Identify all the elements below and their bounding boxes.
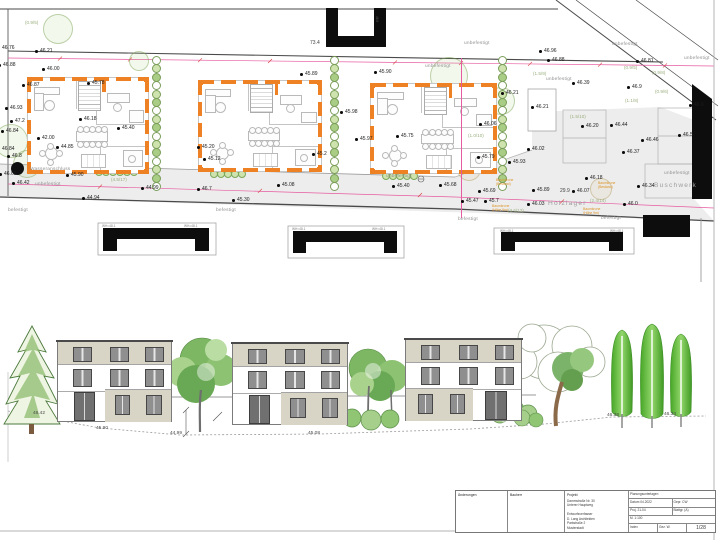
title-block-client: Bauherr (508, 491, 565, 532)
window (145, 347, 164, 362)
elevation-point: 42.00 (42, 136, 55, 141)
wall-corner (370, 169, 375, 174)
window (495, 345, 514, 360)
sofa (34, 93, 44, 111)
project-line: Dammstraße Nr. 30 (567, 499, 626, 503)
elevation-point: 46.0 (628, 202, 638, 207)
elevation-point: 46.88 (552, 58, 565, 63)
desk (107, 93, 129, 103)
window (110, 347, 129, 362)
surface-label: Holzlager (548, 201, 587, 208)
window (285, 349, 304, 364)
tb-cell: Gepr. CW (673, 499, 716, 506)
project-line: Unterer Hauptweg (567, 503, 626, 507)
window (290, 398, 306, 418)
sofa (205, 95, 216, 112)
wall-corner (198, 167, 203, 172)
window (146, 395, 162, 415)
tree-size-label: (1.0/10) (468, 134, 484, 139)
dimension-text: 73.4 (310, 41, 320, 46)
coffee-table (215, 102, 226, 113)
tree-crown (129, 51, 149, 71)
cabinet (301, 112, 316, 124)
sink (128, 155, 136, 163)
window (321, 349, 340, 364)
elevation-dim-ticks (183, 407, 222, 437)
tree-size-label: (0.9/6) (655, 90, 668, 95)
hedge-shrub (330, 182, 339, 191)
elevation-point: 46.18 (84, 117, 97, 122)
office-chair (286, 104, 295, 113)
window (459, 345, 478, 360)
ground-elevation-label: 46.34 (664, 413, 676, 418)
elevation-point: 46.03 (532, 202, 545, 207)
surface-label: befestigt (216, 209, 236, 214)
entrance-door (74, 392, 95, 421)
conifer-tree (4, 326, 60, 434)
chair (391, 145, 398, 152)
chair (47, 143, 54, 150)
tb-cell: Gez. W. (658, 524, 687, 532)
window (421, 345, 440, 360)
elevation-point: 46.20 (586, 124, 599, 129)
surface-label: befestigt (458, 218, 478, 223)
garage-height-label: WH=48.1 (102, 225, 115, 228)
surface-label: befestigt (601, 217, 621, 222)
elevation-point: 46.5 (683, 133, 693, 138)
interior-wall (248, 81, 249, 111)
wall (28, 77, 148, 81)
tree-note-label: Baumkrone(Höhe 9m) (492, 204, 509, 212)
wall (318, 81, 322, 171)
elevation-point: 46.84 (2, 147, 15, 152)
title-block-grid: Planungsunterlagen Datum 04.2022Gepr. CW… (629, 491, 715, 532)
tree-size-label: (1.1/8) (625, 99, 638, 104)
elevation-point: 46.21 (40, 49, 53, 54)
elevation-point: 46.37 (627, 150, 640, 155)
elevation-point: 45.40 (397, 184, 410, 189)
surface-label: unbefestigt (546, 78, 572, 83)
elevation-point: 46.06 (484, 122, 497, 127)
elevation-point: 46.7 (202, 187, 212, 192)
elevation-point: 46.81 (641, 59, 654, 64)
window (418, 394, 434, 414)
elevation-point: 45.90 (379, 70, 392, 75)
garage-height-label: WH=48.1 (610, 230, 623, 233)
elevation-point: 45.68 (444, 183, 457, 188)
surface-label: unbefestigt (664, 172, 690, 177)
elevation-point: 46.68 (4, 172, 17, 177)
wall (145, 78, 149, 173)
window (115, 395, 131, 415)
ground-elevation-label: 45.90 (96, 427, 108, 432)
wall-corner (492, 83, 497, 88)
ground-elevation-label: 46.42 (33, 412, 45, 417)
wall-corner (198, 80, 203, 85)
wall (370, 84, 374, 173)
deciduous-tree-group (343, 349, 408, 430)
chair (39, 150, 46, 157)
surface-label: unbefestigt (612, 43, 638, 48)
author-line: Musterstadt (567, 526, 626, 530)
elevation-point: 45.40 (122, 126, 135, 131)
tree-size-label: (1.5/10) (570, 115, 586, 120)
garage-height-label: WH=48.1 (372, 228, 385, 231)
elevation-point: 46.21 (536, 105, 549, 110)
dining-chair (101, 141, 108, 148)
changes-label: Änderungen (458, 493, 505, 498)
title-block: Änderungen Bauherr Projekt Dammstraße Nr… (455, 490, 716, 533)
site-plan-drawing: Änderungen Bauherr Projekt Dammstraße Nr… (0, 0, 720, 540)
chair (219, 142, 226, 149)
kitchen-counter (81, 154, 106, 168)
surface-label: befestigt (8, 209, 28, 214)
elevation-point: 46.96 (544, 49, 557, 54)
garage-buildings (98, 223, 634, 258)
title-block-changes: Änderungen (456, 491, 508, 532)
elevation-point: 46.07 (577, 189, 590, 194)
elevation-point: 46.44 (615, 123, 628, 128)
kitchen-counter (253, 153, 278, 167)
building-height-label: 46.8 (375, 16, 378, 22)
wall (199, 168, 321, 172)
elevation-point: 46.87 (27, 83, 40, 88)
wall-corner (144, 77, 149, 82)
elevation-point: 46.93 (10, 106, 23, 111)
tb-cell: M. 1:100 (629, 516, 715, 523)
tree-size-label: (0.9/5) (25, 21, 38, 26)
window (248, 371, 267, 389)
tb-cell: Proj. 21-04 (629, 508, 673, 515)
elevation-point: 45.30 (237, 198, 250, 203)
elevation-point: 45.89 (537, 188, 550, 193)
wall (199, 80, 321, 84)
window (495, 367, 514, 385)
vertical-dimension-line (461, 58, 462, 218)
window (145, 369, 164, 387)
sheet-number: 1/28 (687, 524, 715, 532)
elevation-point: 45.98 (345, 110, 358, 115)
window (110, 369, 129, 387)
garage-height-label: WH=48.1 (500, 230, 513, 233)
wall (27, 78, 31, 173)
elevation-point: 44.99 (146, 186, 159, 191)
elevation-point: 45.97 (360, 137, 373, 142)
tree-size-label: (1.5/9) (533, 72, 546, 77)
wall (198, 81, 202, 171)
tree-size-label: (2.4/14) (590, 199, 606, 204)
tree-crown (43, 14, 73, 44)
desk (454, 98, 477, 107)
title-block-project: Projekt Dammstraße Nr. 30 Unterer Hauptw… (565, 491, 629, 532)
elevation-point: 47.2 (15, 119, 25, 124)
elevation-point: 46.9 (632, 85, 642, 90)
entrance-door (485, 391, 507, 420)
elevation-point: 46.6 (694, 103, 704, 108)
tree-size-label: (0.9/5) (624, 66, 637, 71)
window (450, 394, 466, 414)
ground-elevation-label: 44.99 (170, 432, 182, 437)
elevation-point: 45.20 (202, 145, 215, 150)
elevation-point: 45.75 (401, 134, 414, 139)
stairs (250, 84, 273, 113)
tb-cell: Datum 04.2022 (629, 499, 673, 506)
wall-corner (144, 169, 149, 174)
elevation-point: 46.46 (646, 138, 659, 143)
interior-wall (421, 84, 422, 113)
elevation-point: 46.76 (2, 46, 15, 51)
office-chair (113, 103, 122, 112)
chair (227, 149, 234, 156)
surface-label: unbefestigt (425, 65, 451, 70)
wall (371, 83, 496, 87)
ground-elevation-label: 46.38 (607, 414, 619, 419)
desk (280, 95, 303, 104)
coffee-table (44, 100, 55, 111)
surface-label: Wasseranschluss (30, 168, 70, 173)
interior-wall (76, 78, 77, 109)
tree-size-label: (4.5/17) (111, 178, 127, 183)
surface-label: unbefestigt (35, 183, 61, 188)
building-elevation-3 (405, 339, 522, 421)
chair (56, 150, 63, 157)
window (285, 371, 304, 389)
tree-note-label: Baumkrone(Bestand) (598, 181, 615, 189)
interior-wall (272, 146, 321, 147)
window (421, 367, 440, 385)
interior-wall-stub (275, 81, 279, 95)
window (321, 371, 340, 389)
elevation-point: 45.78 (92, 81, 105, 86)
elevation-point: 45.47 (466, 199, 479, 204)
window (73, 347, 92, 362)
elevation-point: 46.39 (577, 81, 590, 86)
project-label: Projekt (567, 493, 626, 498)
chair (382, 152, 389, 159)
elevation-point: 46.34 (642, 184, 655, 189)
interior-wall-stub (449, 84, 453, 98)
tree-size-label: (0.9/8) (652, 71, 665, 76)
surface-label: Buschwerk (654, 183, 697, 190)
interior-wall (269, 124, 321, 125)
elevation-point: 45.69 (483, 189, 496, 194)
window (73, 369, 92, 387)
deciduous-tree-1 (167, 338, 237, 432)
house-plan-3 (370, 83, 497, 174)
entrance-door (249, 395, 270, 424)
tree-size-label: (3.6/12) (508, 209, 524, 214)
stairs (424, 87, 447, 116)
elevation-point: 46.84 (6, 129, 19, 134)
elevation-point: 45.79 (482, 155, 495, 160)
tb-cell: Index (629, 524, 658, 532)
window (322, 398, 338, 418)
chair (47, 159, 54, 166)
window (459, 367, 478, 385)
surface-label: unbefestigt (464, 42, 490, 47)
chair (400, 152, 407, 159)
garage-height-label: WH=48.1 (292, 228, 305, 231)
kitchen-counter (426, 155, 452, 169)
window (248, 349, 267, 364)
chair (391, 160, 398, 167)
elevation-point: 46.02 (532, 147, 545, 152)
elevation-point: 44.94 (87, 196, 100, 201)
elevation-point: 46.8 (12, 154, 22, 159)
neighbor-building-outline (528, 89, 556, 131)
author-line: Entwurfsverfasser (567, 512, 626, 516)
wall-corner (317, 167, 322, 172)
elevation-point: 46.00 (47, 67, 60, 72)
wall-corner (492, 169, 497, 174)
tree-note-label: Baumkrone(Bestand) (496, 178, 513, 186)
elevation-point: 45.93 (513, 160, 526, 165)
client-label: Bauherr (510, 493, 562, 498)
cabinet (129, 110, 144, 122)
garage-height-label: WH=48.1 (184, 225, 197, 228)
author-line: D. Lang Architekten (567, 517, 626, 521)
elevation-point: 46.21 (506, 91, 519, 96)
elevation-point: 45.08 (282, 183, 295, 188)
elevation-point: 45.90 (71, 173, 84, 178)
elevation-point: 46.42 (17, 181, 30, 186)
wall-corner (317, 80, 322, 85)
coffee-table (387, 104, 398, 115)
author-line: Parkstraße 2 (567, 521, 626, 525)
building-elevation-1 (57, 341, 172, 422)
elevation-point: 45.12 (208, 157, 221, 162)
elevation-point: 44.85 (61, 145, 74, 150)
tb-cell: Blattgr. (A) (673, 508, 716, 515)
surface-label: unbefestigt (684, 57, 710, 62)
elevation-point: 45.89 (305, 72, 318, 77)
building-elevation-2 (232, 343, 348, 425)
dining-chair (447, 143, 454, 150)
elevation-point: 45.2 (317, 152, 327, 157)
ground-elevation-label: 45.08 (308, 432, 320, 437)
surface-label: unbefestigt (386, 175, 412, 180)
elevation-point: 46.88 (3, 63, 16, 68)
tree-note-label: Baumkrone(Höhe 9m) (583, 207, 600, 215)
dimension-text: 29.9 (560, 189, 570, 194)
tall-trees (611, 324, 691, 428)
wall-corner (370, 83, 375, 88)
office-header: Planungsunterlagen (629, 491, 715, 498)
